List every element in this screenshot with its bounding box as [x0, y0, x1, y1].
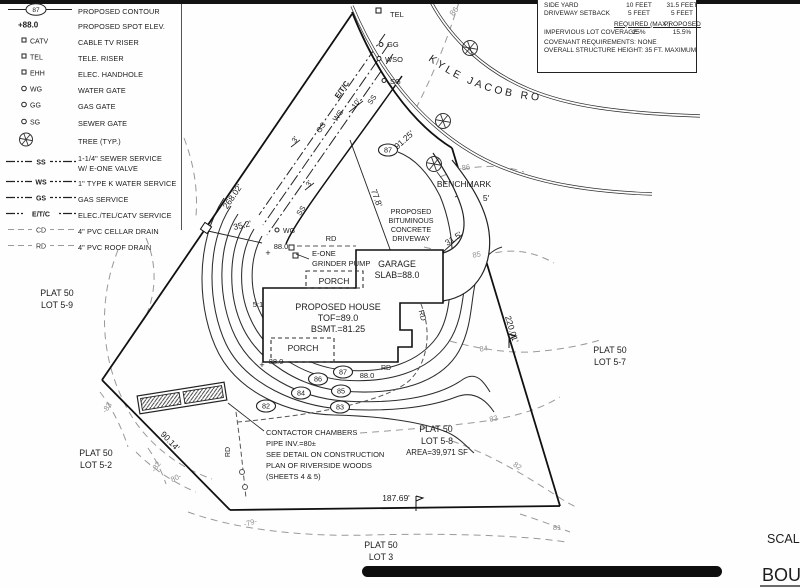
contour-bubble: 82: [257, 400, 276, 412]
plan-label: RD: [381, 365, 391, 372]
svg-text:WG: WG: [30, 87, 42, 94]
plan-label: PIPE INV.=80±: [266, 439, 316, 448]
plan-label: PLAN OF RIVERSIDE WOODS: [266, 461, 372, 470]
table-cell: REQUIRED (MAX.): [614, 22, 664, 29]
drain-symbol-icon: CD: [6, 222, 76, 237]
legend-label: PROPOSED CONTOUR: [78, 7, 160, 16]
gate-symbol-icon: GG: [6, 97, 76, 112]
plan-label: -83: [100, 401, 114, 415]
table-cell: 15.5%: [664, 30, 700, 37]
svg-text:TEL: TEL: [30, 54, 43, 61]
plan-label: LOT 5-9: [41, 300, 73, 310]
svg-text:SG: SG: [30, 119, 40, 126]
legend-label: GAS SERVICE: [78, 195, 128, 204]
svg-text:E/T/C: E/T/C: [32, 212, 50, 219]
plan-label: DRIVEWAY: [392, 234, 430, 243]
svg-text:EHH: EHH: [30, 70, 45, 77]
drain-cleanouts: [240, 470, 248, 490]
plan-label: RD: [417, 309, 429, 322]
svg-text:82: 82: [262, 402, 270, 411]
plan-label: 81: [553, 523, 561, 532]
legend-item: SGSEWER GATE: [6, 115, 180, 132]
legend-item: TREE (TYP.): [6, 132, 180, 152]
plan-label: BENCHMARK: [437, 179, 492, 189]
table-cell: 25%: [614, 30, 664, 37]
plan-label: E-ONE: [312, 249, 336, 258]
table-cell: [544, 19, 614, 30]
service-symbol-icon: SS: [6, 154, 76, 169]
legend-label: SEWER GATE: [78, 119, 127, 128]
plan-label: 91.25': [392, 128, 416, 151]
svg-text:84: 84: [297, 389, 305, 398]
legend-label: TREE (TYP.): [78, 137, 121, 146]
riser-symbol-icon: TEL: [6, 49, 76, 64]
plan-label: PLAT 50: [593, 345, 627, 355]
legend-label: ELEC./TEL/CATV SERVICE: [78, 211, 172, 220]
zoning-setback-table: SIDE YARD10 FEET31.5 FEETDRIVEWAY SETBAC…: [537, 0, 697, 73]
plan-label: PROPOSED: [391, 207, 432, 216]
svg-text:87: 87: [339, 368, 347, 377]
plan-label: 80-: [169, 471, 183, 484]
plan-label: SCAL: [767, 532, 800, 546]
site-plan-sheet: KYLE JACOB ROAD: [0, 0, 800, 588]
plan-label: RD: [326, 234, 337, 243]
plan-label: CONCRETE: [391, 225, 432, 234]
plan-label: PORCH: [319, 276, 350, 286]
tel-riser-marker: [376, 8, 381, 13]
legend-symbol: SG: [6, 114, 78, 134]
legend-label: 4" PVC CELLAR DRAIN: [78, 227, 159, 236]
setback-grid: SIDE YARD10 FEET31.5 FEETDRIVEWAY SETBAC…: [544, 3, 693, 37]
contactor-chambers: [137, 382, 227, 414]
table-cell: 5 FEET: [664, 11, 700, 18]
table-cell: 5 FEET: [614, 11, 664, 18]
tree-icon: [436, 114, 451, 129]
legend-divider: [181, 4, 182, 230]
legend-symbol: SS: [6, 154, 78, 174]
plan-label: GARAGE: [378, 259, 416, 269]
plan-label: SEE DETAIL ON CONSTRUCTION: [266, 450, 384, 459]
plan-label: -86: [459, 162, 471, 172]
svg-text:RD: RD: [36, 243, 46, 250]
contour-symbol-icon: 87: [6, 2, 76, 17]
riser-symbol-icon: EHH: [6, 65, 76, 80]
plan-label: 88.0: [269, 357, 284, 366]
plan-label: PLAT 50: [364, 540, 398, 550]
svg-text:83: 83: [336, 403, 344, 412]
title-block-bar: [362, 566, 722, 577]
plan-label: +: [265, 248, 270, 258]
plan-label: 5': [483, 193, 490, 203]
svg-text:87: 87: [384, 146, 392, 155]
plan-label: SS: [294, 204, 307, 217]
legend-label: PROPOSED SPOT ELEV.: [78, 22, 165, 31]
gate-symbol-icon: WG: [6, 81, 76, 96]
plan-label: 86: [448, 5, 461, 18]
gate-symbol-icon: SG: [6, 114, 76, 129]
plan-label: LOT 5-8: [421, 436, 453, 446]
legend-item: SS1-1/4" SEWER SERVICEW/ E-ONE VALVE: [6, 152, 180, 175]
tree-icon: [20, 133, 33, 146]
table-note-line: OVERALL STRUCTURE HEIGHT: 35 FT. MAXIMUM: [544, 48, 693, 55]
plan-label: 220.01': [503, 314, 521, 344]
plan-label: BOU: [762, 565, 800, 585]
contour-bubble: 87: [334, 366, 353, 378]
drain-symbol-icon: RD: [6, 238, 76, 253]
contour-bubble: 84: [292, 387, 311, 399]
table-cell: 10 FEET: [614, 3, 664, 10]
plan-label: 35.2': [232, 218, 252, 232]
plan-label: TOF=89.0: [318, 313, 359, 323]
tree-icon: [427, 157, 442, 172]
service-symbol-icon: GS: [6, 190, 76, 205]
plan-label: GRINDER PUMP: [312, 259, 370, 268]
plan-label: E/T/C: [333, 79, 352, 100]
grinder-pump: [289, 245, 298, 258]
legend-label: 1-1/4" SEWER SERVICEW/ E-ONE VALVE: [78, 154, 162, 172]
plan-label: 83: [488, 413, 498, 424]
plan-label: WG: [283, 228, 295, 235]
table-cell: DRIVEWAY SETBACK: [544, 11, 614, 18]
plan-label: 88.0: [274, 242, 289, 251]
legend-label: 4" PVC ROOF DRAIN: [78, 243, 151, 252]
svg-text:87: 87: [32, 7, 40, 14]
plan-label: CONTACTOR CHAMBERS: [266, 428, 357, 437]
table-cell: 31.5 FEET: [664, 3, 700, 10]
plan-label: WSO: [385, 55, 403, 64]
plan-label: 85: [472, 249, 482, 259]
service-symbol-icon: E/T/C: [6, 206, 76, 221]
plan-label: LOT 3: [369, 552, 393, 562]
plan-label: PORCH: [288, 343, 319, 353]
plan-label: SS: [365, 93, 378, 106]
legend-item: RD4" PVC ROOF DRAIN: [6, 240, 180, 255]
plan-label: PLAT 50: [40, 288, 74, 298]
sewer-service-line: [286, 76, 402, 244]
legend-label: ELEC. HANDHOLE: [78, 70, 143, 79]
plan-label: GG: [387, 40, 399, 49]
svg-text:CD: CD: [36, 228, 46, 235]
plan-label: PROPOSED HOUSE: [295, 302, 381, 312]
contour-bubble: 86: [309, 373, 328, 385]
svg-text:GS: GS: [36, 196, 46, 203]
plan-label: SG: [390, 77, 401, 86]
table-notes: COVENANT REQUIREMENTS: NONEOVERALL STRUC…: [544, 40, 693, 55]
plan-label: BITUMINOUS: [388, 216, 433, 225]
south-lot-line: [230, 506, 560, 510]
plan-label: 82: [511, 460, 523, 472]
plan-label: 3': [304, 178, 315, 188]
svg-text:85: 85: [337, 387, 345, 396]
contour-bubble: 83: [331, 401, 350, 413]
gas-service-line: [263, 44, 389, 225]
plan-label: (SHEETS 4 & 5): [266, 472, 321, 481]
plan-label: +: [259, 360, 264, 370]
legend: 87PROPOSED CONTOUR+88.0PROPOSED SPOT ELE…: [6, 4, 180, 255]
legend-label: 1" TYPE K WATER SERVICE: [78, 179, 176, 188]
service-symbol-icon: WS: [6, 174, 76, 189]
iron-pipe-marker: [416, 496, 423, 511]
legend-symbol: [6, 132, 78, 152]
plan-label: 187.69': [382, 493, 410, 503]
contour-bubble: 85: [332, 385, 351, 397]
plan-label: PLAT 50: [79, 448, 113, 458]
legend-label: WATER GATE: [78, 86, 126, 95]
spot-symbol-icon: +88.0: [6, 17, 76, 32]
plan-label: TEL: [390, 10, 404, 19]
plan-label: 88.0: [360, 371, 375, 380]
plan-label: -79-: [243, 516, 259, 528]
plan-label: SLAB=88.0: [375, 270, 420, 280]
riser-symbol-icon: CATV: [6, 33, 76, 48]
plan-label: LOT 5-2: [80, 460, 112, 470]
plan-label: PLAT 50: [419, 424, 453, 434]
svg-text:+88.0: +88.0: [18, 21, 39, 30]
plan-label: BSMT.=81.25: [311, 324, 365, 334]
plan-label: RD: [225, 447, 232, 457]
svg-text:GG: GG: [30, 103, 41, 110]
legend-label: TELE. RISER: [78, 54, 124, 63]
svg-text:SS: SS: [36, 159, 46, 166]
svg-text:86: 86: [314, 375, 322, 384]
legend-label: GAS GATE: [78, 102, 116, 111]
plan-label: 84: [479, 343, 489, 353]
tree-symbol-icon: [6, 132, 76, 147]
plan-label: 3': [290, 134, 301, 144]
svg-text:CATV: CATV: [30, 39, 48, 46]
svg-text:WS: WS: [35, 179, 47, 186]
utility-services: [259, 34, 402, 244]
table-cell: SIDE YARD: [544, 3, 614, 10]
water-service-line: [267, 54, 393, 235]
legend-symbol: RD: [6, 238, 78, 258]
plan-label: 268.02': [221, 182, 245, 211]
plan-label: AREA=39,971 SF: [406, 448, 468, 457]
plan-label: LOT 5-7: [594, 357, 626, 367]
plan-label: 5:1: [253, 300, 263, 309]
table-cell: IMPERVIOUS LOT COVERAGE: [544, 30, 614, 37]
table-cell: PROPOSED: [664, 22, 700, 29]
legend-label: CABLE TV RISER: [78, 38, 139, 47]
plan-label: GS: [314, 121, 328, 135]
table-note-line: COVENANT REQUIREMENTS: NONE: [544, 40, 693, 47]
